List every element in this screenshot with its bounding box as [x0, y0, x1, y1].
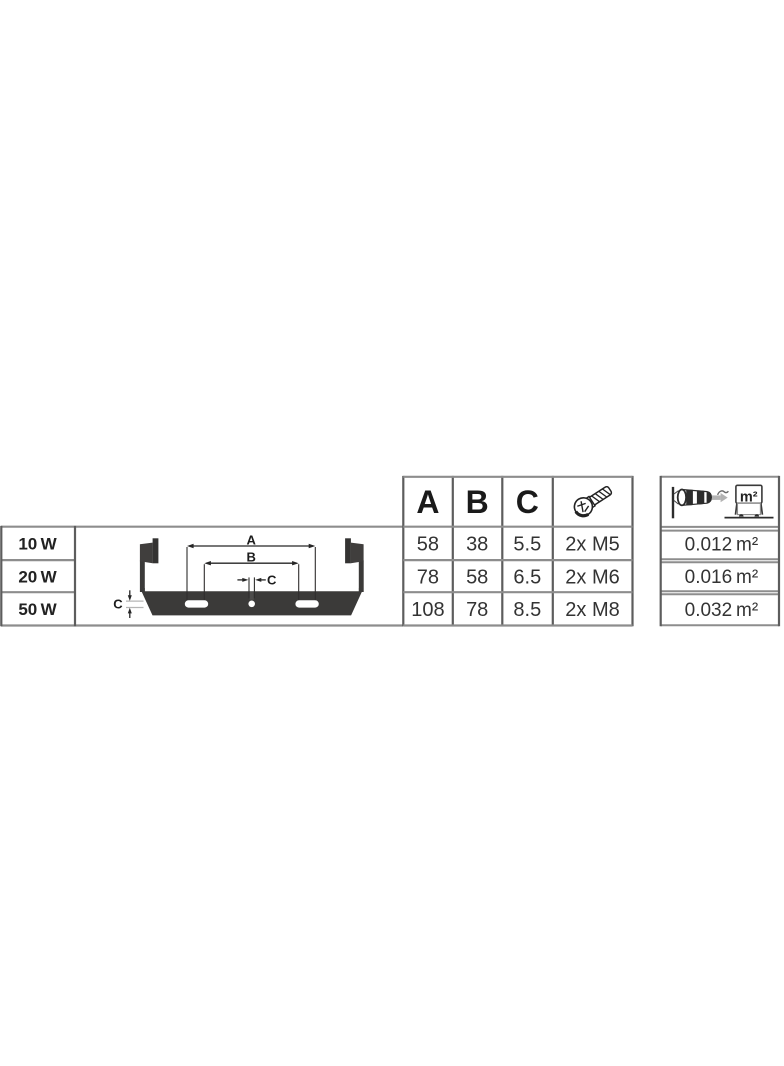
svg-text:B: B: [466, 484, 489, 520]
svg-text:10 W: 10 W: [18, 535, 57, 554]
svg-text:0.032 m²: 0.032 m²: [685, 600, 759, 621]
svg-text:B: B: [247, 549, 256, 564]
svg-text:0.012 m²: 0.012 m²: [685, 534, 759, 555]
svg-text:A: A: [247, 532, 257, 547]
svg-text:8.5: 8.5: [513, 599, 541, 621]
svg-text:58: 58: [417, 534, 439, 556]
svg-text:C: C: [113, 596, 123, 611]
svg-text:2x M5: 2x M5: [565, 534, 619, 556]
svg-text:5.5: 5.5: [513, 534, 541, 556]
svg-text:20 W: 20 W: [18, 567, 57, 586]
svg-text:50 W: 50 W: [18, 600, 57, 619]
svg-text:0.016 m²: 0.016 m²: [685, 567, 759, 588]
svg-text:38: 38: [466, 534, 488, 556]
svg-text:2x M6: 2x M6: [565, 566, 619, 588]
svg-text:2x M8: 2x M8: [565, 599, 619, 621]
svg-text:78: 78: [466, 599, 488, 621]
svg-text:58: 58: [466, 566, 488, 588]
svg-text:78: 78: [417, 566, 439, 588]
svg-text:C: C: [267, 572, 277, 587]
svg-text:C: C: [516, 484, 539, 520]
svg-text:6.5: 6.5: [513, 566, 541, 588]
svg-text:A: A: [416, 484, 439, 520]
svg-text:108: 108: [411, 599, 444, 621]
